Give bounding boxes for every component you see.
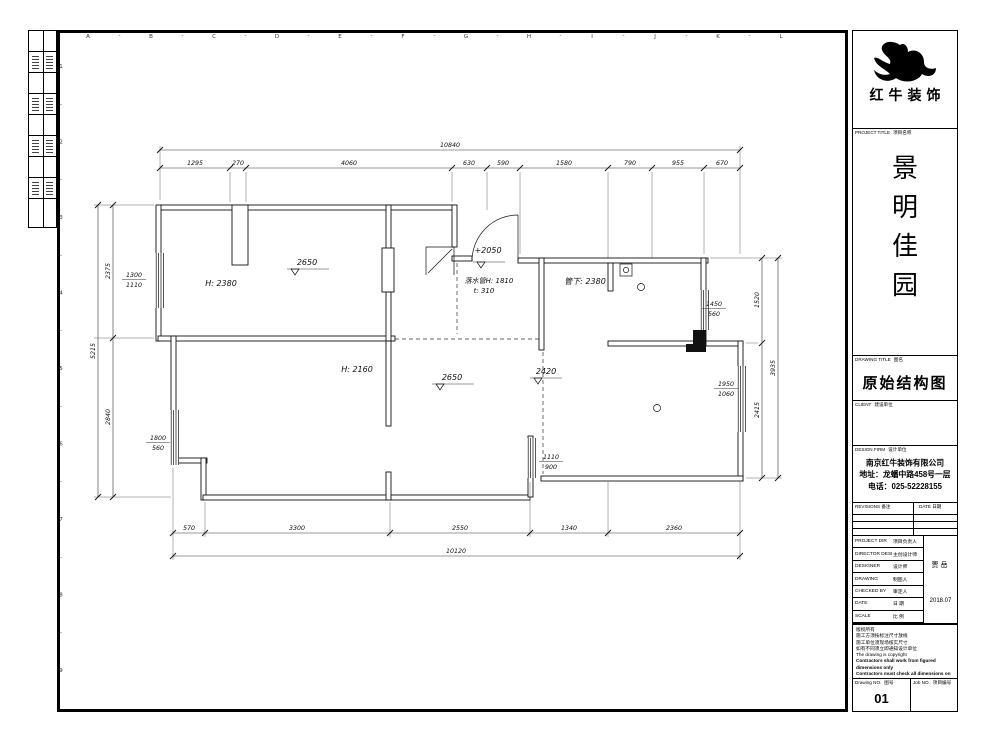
top-dim: 630 xyxy=(463,160,475,167)
revisions-section: REVISIONS 备注 DATE 日期 xyxy=(853,503,957,536)
windows xyxy=(155,253,746,478)
grid-ref: 6 xyxy=(59,442,63,448)
grid-ref: - xyxy=(623,33,625,39)
dimension-labels: 10840 1295 270 4060 630 590 1580 790 955… xyxy=(90,142,777,555)
level-label: +2050 xyxy=(474,246,501,255)
top-dim: 270 xyxy=(232,160,244,167)
personnel-section: PROJECT DIR项目负责人 DIRECTOR DESI主创设计师 DESI… xyxy=(853,536,957,623)
bottom-dim: 1340 xyxy=(561,525,577,532)
logo-section: 红牛装饰 xyxy=(853,31,957,129)
grid-ref: - xyxy=(60,404,62,410)
grid-ref: L xyxy=(779,34,783,40)
floor-plan-drawing: 10840 1295 270 4060 630 590 1580 790 955… xyxy=(0,0,986,740)
entry-note: t: 310 xyxy=(474,287,495,295)
right-dim: 2415 xyxy=(754,402,761,418)
grid-ref: - xyxy=(60,102,62,108)
window-dim: 1060 xyxy=(718,391,734,398)
top-dim: 1295 xyxy=(187,160,203,167)
grid-ref: I xyxy=(591,34,593,40)
grid-ref: - xyxy=(686,33,688,39)
firm-label-zh: 设计单位 xyxy=(888,447,906,453)
top-dim: 790 xyxy=(624,160,636,167)
grid-ref: - xyxy=(497,33,499,39)
drawing-sheet: 10840 1295 270 4060 630 590 1580 790 955… xyxy=(0,0,986,740)
pipe-symbols xyxy=(620,264,661,412)
bottom-dim: 570 xyxy=(183,525,195,532)
bottom-overall-dim: 10120 xyxy=(446,548,466,555)
window-dim: 1950 xyxy=(718,381,734,388)
top-dim: 955 xyxy=(672,160,684,167)
grid-ref: B xyxy=(149,34,153,40)
client-section: CLIENT建设单位 xyxy=(853,401,957,446)
number-section: Drawing NO.图号 01 Job NO.项目编号 xyxy=(853,679,957,711)
grid-ref: 2 xyxy=(59,140,63,146)
grid-ref: 3 xyxy=(59,215,63,221)
grid-ref: 9 xyxy=(59,668,63,674)
interior-door-jamb xyxy=(382,248,394,292)
grid-references: A-B-C-D-E-F-G-H-I-J-K-L1-2-3-4-5-6-7-8-9 xyxy=(59,33,783,674)
designer-name: 贾岳 xyxy=(924,560,957,570)
grid-ref: J xyxy=(653,34,656,40)
grid-ref: H xyxy=(527,34,531,40)
grid-ref: - xyxy=(560,33,562,39)
date-value: 2018.07 xyxy=(924,598,957,604)
room-labels: H: 2380 2650 +2050 落水管H: 1810 t: 310 管下:… xyxy=(205,246,606,390)
grid-ref: - xyxy=(308,33,310,39)
height-label: H: 2380 xyxy=(205,279,237,288)
title-block: 红牛装饰 PROJECT TITLE项目名称 景 明 佳 园 DRAWING T… xyxy=(852,30,958,712)
grid-ref: - xyxy=(119,33,121,39)
bottom-dim: 2550 xyxy=(452,525,468,532)
grid-ref: 5 xyxy=(59,366,63,372)
grid-ref: - xyxy=(60,479,62,485)
grid-ref: - xyxy=(60,555,62,561)
clear-dim-label: 2650 xyxy=(442,373,462,382)
grid-ref: 8 xyxy=(59,593,63,599)
grid-ref: A xyxy=(86,34,90,40)
top-overall-dim: 10840 xyxy=(440,142,460,149)
window-dim: 560 xyxy=(708,311,720,318)
client-label-zh: 建设单位 xyxy=(874,402,892,408)
drawing-label-zh: 图名 xyxy=(894,357,903,363)
height-label: H: 2160 xyxy=(341,365,373,374)
drawing-title-section: DRAWING TITLE图名 原始结构图 xyxy=(853,356,957,401)
right-dim: 1520 xyxy=(754,292,761,308)
left-overall-dim: 5215 xyxy=(90,343,97,359)
window-dim: 560 xyxy=(152,445,164,452)
firm-info: 南京红牛装饰有限公司 地址：龙蟠中路458号一层 电话：025-52228155 xyxy=(857,457,953,493)
notes-section: 版权所有 施工方须按标注尺寸放线 施工单位须现场核实尺寸 如有不同须立即通知设计… xyxy=(853,623,957,679)
bottom-dim: 3300 xyxy=(289,525,305,532)
brand-name: 红牛装饰 xyxy=(858,85,957,105)
project-label-en: PROJECT TITLE xyxy=(855,130,890,136)
top-dim: 1580 xyxy=(556,160,572,167)
window-dim-labels: 13001110 1800560 1110900 1450560 1950106… xyxy=(122,272,738,471)
grid-ref: 1 xyxy=(59,64,63,70)
pipe-height-label: 管下: 2380 xyxy=(564,277,606,286)
grid-ref: - xyxy=(60,630,62,636)
design-firm-section: DESIGN FIRM设计单位 南京红牛装饰有限公司 地址：龙蟠中路458号一层… xyxy=(853,446,957,503)
entry-note: 落水管H: 1810 xyxy=(465,277,514,285)
left-dim: 2375 xyxy=(105,263,112,279)
grid-ref: - xyxy=(371,33,373,39)
clear-dim-label: 2650 xyxy=(297,258,317,267)
left-dim: 2840 xyxy=(105,409,112,425)
drawing-title: 原始结构图 xyxy=(853,372,957,393)
rednbull-logo-icon xyxy=(870,39,940,85)
firm-phone: 电话：025-52228155 xyxy=(857,481,953,493)
grid-ref: - xyxy=(60,253,62,259)
grid-ref: C xyxy=(212,34,216,40)
grid-ref: - xyxy=(434,33,436,39)
window-dim: 1110 xyxy=(543,454,559,461)
dashed-lines xyxy=(395,263,543,474)
top-dim: 590 xyxy=(497,160,509,167)
project-name: 景 明 佳 园 xyxy=(853,155,957,298)
drawing-number: 01 xyxy=(853,691,910,706)
window-dim: 1450 xyxy=(706,301,722,308)
walls xyxy=(156,205,743,500)
window-dim: 1800 xyxy=(150,435,166,442)
drawing-label-en: DRAWING TITLE xyxy=(855,357,891,363)
firm-address: 地址：龙蟠中路458号一层 xyxy=(857,469,953,481)
project-label-zh: 项目名称 xyxy=(893,130,911,136)
grid-ref: E xyxy=(338,34,342,40)
project-section: PROJECT TITLE项目名称 景 明 佳 园 xyxy=(853,129,957,356)
window-dim: 1110 xyxy=(126,282,142,289)
firm-company: 南京红牛装饰有限公司 xyxy=(857,457,953,469)
window-dim: 1300 xyxy=(126,272,142,279)
grid-ref: F xyxy=(401,34,404,40)
grid-ref: - xyxy=(245,33,247,39)
grid-ref: D xyxy=(275,34,279,40)
right-overall-dim: 3935 xyxy=(770,360,777,376)
grid-ref: 4 xyxy=(59,291,63,297)
grid-ref: - xyxy=(749,33,751,39)
top-dim: 670 xyxy=(716,160,728,167)
clear-dim-label: 2420 xyxy=(536,367,556,376)
grid-ref: 7 xyxy=(59,517,63,523)
grid-ref: - xyxy=(60,177,62,183)
client-label-en: CLIENT xyxy=(855,402,871,408)
bottom-dim: 2360 xyxy=(666,525,682,532)
grid-ref: - xyxy=(60,328,62,334)
grid-ref: - xyxy=(182,33,184,39)
personnel-values: 贾岳 2018.07 xyxy=(923,536,957,623)
window-dim: 900 xyxy=(545,464,557,471)
top-dim: 4060 xyxy=(341,160,357,167)
firm-label-en: DESIGN FIRM xyxy=(855,447,885,453)
grid-ref: G xyxy=(464,34,468,40)
grid-ref: K xyxy=(716,34,720,40)
